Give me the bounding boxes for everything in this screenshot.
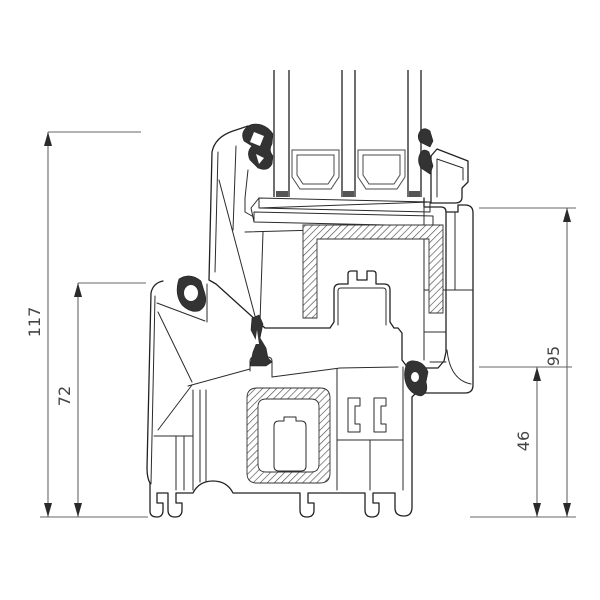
dimension-label: 117 <box>25 307 44 338</box>
dimension-rebate-height: 46 <box>479 367 572 517</box>
dimension-overall-height: 117 <box>25 132 141 517</box>
spacer-bar <box>292 150 339 189</box>
dimension-label: 95 <box>544 346 563 366</box>
frame-rebate-gasket <box>177 276 206 311</box>
dimension-label: 72 <box>55 386 74 406</box>
spacer-bar <box>358 150 405 189</box>
window-section-drawing: 117 72 95 46 <box>0 0 600 600</box>
dimension-frame-outer-height: 72 <box>55 283 146 517</box>
dimension-label: 46 <box>514 431 533 451</box>
glazing-gasket-outer <box>243 124 273 169</box>
centre-seal-gasket <box>250 315 272 366</box>
dimension-frame-inner-height: 95 <box>479 208 576 517</box>
glazing-packer <box>251 198 433 226</box>
glazing-unit <box>274 70 421 197</box>
glazing-bead <box>431 149 468 203</box>
frame-steel-reinforcement <box>247 388 330 483</box>
glass-pane-outer <box>274 70 289 197</box>
glass-edge-seal <box>276 191 420 197</box>
frame-inner-gasket <box>405 361 429 396</box>
glass-pane-middle <box>342 70 355 197</box>
technical-drawing-canvas: 117 72 95 46 <box>0 0 600 600</box>
screw-channel <box>274 417 306 471</box>
